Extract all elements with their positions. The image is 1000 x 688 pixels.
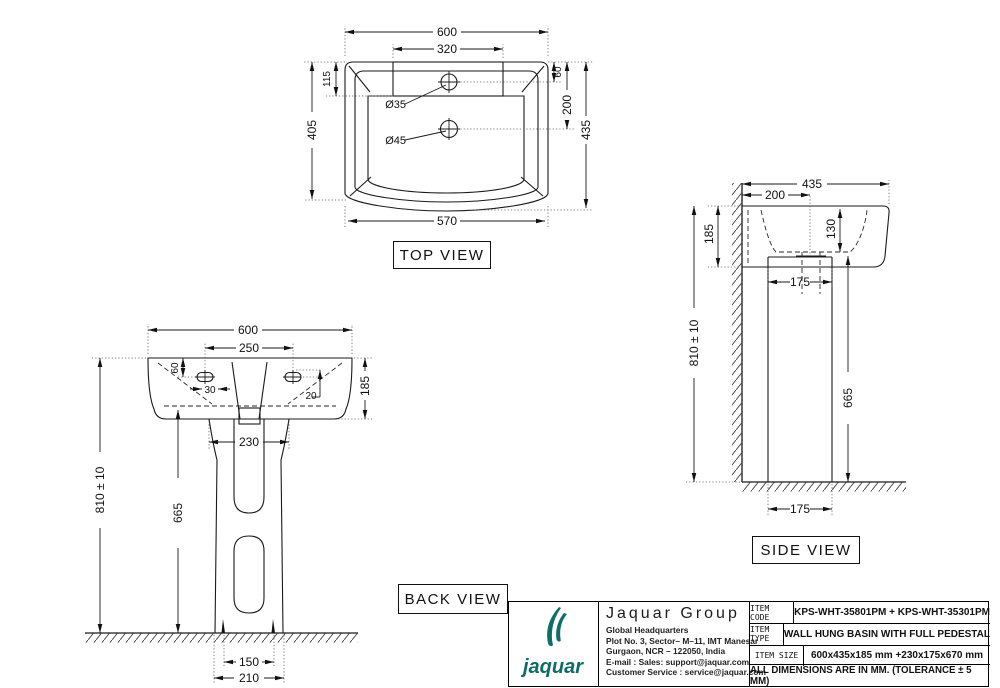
dim-label: 20 xyxy=(305,391,317,402)
dim-label: 230 xyxy=(239,435,259,449)
dim-label: 665 xyxy=(841,388,855,408)
company-dept: Global Headquarters xyxy=(606,625,749,636)
dim-label: 175 xyxy=(790,275,810,289)
back-view-label-text: BACK VIEW xyxy=(405,591,502,608)
dim-label: 200 xyxy=(765,188,785,202)
jaquar-logo-icon: jaquar xyxy=(509,602,598,686)
dim-label: 435 xyxy=(579,120,593,140)
company-address-2: Gurgaon, NCR – 122050, India xyxy=(606,646,749,657)
dim-label: 570 xyxy=(437,214,457,228)
item-type-label: ITEM TYPE xyxy=(750,624,784,645)
dim-label: 60 xyxy=(553,66,564,78)
dim-label: 185 xyxy=(702,224,716,244)
back-view-drawing: 600 250 60 30 20 185 230 810 ± 10 665 15… xyxy=(85,323,373,685)
tap-hole-label: Ø35 xyxy=(385,99,406,111)
dim-label: 405 xyxy=(305,120,319,140)
dim-label: 810 ± 10 xyxy=(687,319,701,366)
dim-label: 115 xyxy=(322,71,333,87)
dim-label: 175 xyxy=(790,502,810,516)
dim-label: 250 xyxy=(239,341,259,355)
back-view-label: BACK VIEW xyxy=(398,584,508,614)
item-type-row: ITEM TYPE WALL HUNG BASIN WITH FULL PEDE… xyxy=(750,623,990,645)
item-size-label: ITEM SIZE xyxy=(750,646,804,667)
dim-label: 150 xyxy=(239,655,259,669)
dim-label: 600 xyxy=(437,25,457,39)
logo-wordmark: jaquar xyxy=(520,656,584,678)
company-customer-service: Customer Service : service@jaquar.com xyxy=(606,667,749,678)
item-type-value: WALL HUNG BASIN WITH FULL PEDESTAL xyxy=(784,624,990,645)
dim-label: 60 xyxy=(170,362,181,374)
tolerance-note: ALL DIMENSIONS ARE IN MM. (TOLERANCE ± 5… xyxy=(750,664,990,686)
dim-label: 600 xyxy=(238,323,258,337)
company-email: E-mail : Sales: support@jaquar.com xyxy=(606,657,749,668)
dim-label: 320 xyxy=(437,42,457,56)
dim-label: 200 xyxy=(560,95,574,115)
side-view-label-text: SIDE VIEW xyxy=(760,542,851,559)
dim-label: 130 xyxy=(824,219,838,239)
brand-logo: jaquar xyxy=(509,602,598,686)
top-view-label-text: TOP VIEW xyxy=(400,247,485,264)
company-name: Jaquar Group xyxy=(606,605,749,623)
dim-label: 210 xyxy=(239,671,259,685)
dim-label: 30 xyxy=(204,385,216,396)
top-view-label: TOP VIEW xyxy=(393,241,491,269)
item-size-value: 600x435x185 mm +230x175x670 mm xyxy=(804,646,990,667)
item-code-row: ITEM CODE KPS-WHT-35801PM + KPS-WHT-3530… xyxy=(750,602,990,623)
dim-label: 665 xyxy=(171,503,185,523)
dim-label: 435 xyxy=(802,177,822,191)
item-code-label: ITEM CODE xyxy=(750,602,794,623)
drawing-canvas: 600 320 570 115 405 60 200 435 Ø35 Ø45 xyxy=(0,0,1000,688)
side-view-label: SIDE VIEW xyxy=(752,536,860,564)
item-code-value: KPS-WHT-35801PM + KPS-WHT-35301PM xyxy=(794,602,990,623)
waste-hole-label: Ø45 xyxy=(385,135,406,147)
company-address-1: Plot No. 3, Sector– M–11, IMT Manesar xyxy=(606,636,749,647)
dim-label: 810 ± 10 xyxy=(93,466,107,513)
top-view-drawing: 600 320 570 115 405 60 200 435 Ø35 Ø45 xyxy=(304,25,593,228)
dim-label: 185 xyxy=(358,376,372,396)
company-info: Jaquar Group Global Headquarters Plot No… xyxy=(598,602,749,686)
item-size-row: ITEM SIZE 600x435x185 mm +230x175x670 mm xyxy=(750,645,990,667)
side-view-drawing: 435 200 185 810 ± 10 130 665 175 175 xyxy=(686,177,906,516)
title-block: jaquar Jaquar Group Global Headquarters … xyxy=(508,601,989,687)
item-table: ITEM CODE KPS-WHT-35801PM + KPS-WHT-3530… xyxy=(749,602,990,686)
